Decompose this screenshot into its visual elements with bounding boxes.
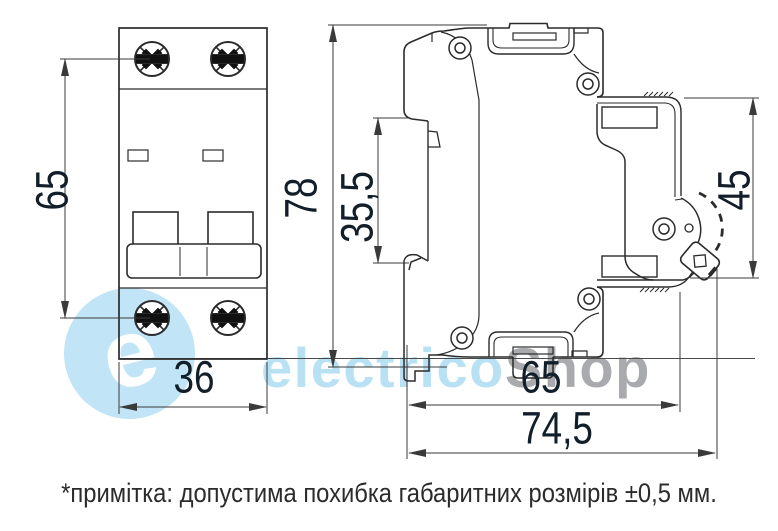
side-top-outline (404, 24, 603, 122)
case-rivet (577, 73, 599, 95)
breaker-dimension-drawing (0, 0, 778, 531)
terminal-recess-bottom (602, 256, 657, 277)
case-rivet (578, 288, 600, 310)
dim-label-overall-depth: 74,5 (521, 406, 593, 451)
top-arch-inner (493, 28, 569, 48)
din-foot (404, 267, 470, 381)
dim-label-din-clip: 35,5 (335, 171, 380, 243)
lever-boss-arc (681, 198, 701, 245)
side-view (404, 24, 722, 382)
technical-drawing-page: e electricoShop (0, 0, 778, 531)
terminal-clamp-bottom (597, 270, 695, 292)
clamp-hatching (640, 288, 669, 292)
molding-lines (432, 32, 599, 355)
lever-pivot-rivet (653, 218, 675, 240)
dim-label-front-width: 36 (173, 355, 214, 400)
toggle-right (208, 212, 253, 247)
toggle-handle-bar (127, 244, 261, 278)
pole-window-right (203, 150, 223, 161)
top-arch-outer (488, 28, 574, 54)
pole-window-left (128, 150, 148, 161)
din-hook (404, 255, 428, 270)
dim-label-right-side: 45 (712, 169, 757, 210)
clamp-hatching (644, 92, 673, 96)
case-rivet (449, 37, 471, 59)
bottom-notch (572, 351, 587, 357)
terminal-recess-top (602, 107, 657, 128)
dim-label-overall-height: 78 (279, 177, 324, 218)
top-tab-window (513, 33, 556, 40)
toggle-left (133, 212, 178, 247)
din-clip-tab (428, 131, 440, 147)
terminal-screw-icon (211, 301, 245, 335)
dim-label-front-height: 65 (30, 169, 75, 210)
lever-pin (685, 224, 693, 232)
case-rivet (451, 327, 473, 349)
dim-label-base-depth: 65 (520, 355, 561, 400)
terminal-clamp-top (597, 92, 682, 200)
terminal-screw-icon (211, 42, 245, 76)
front-view (119, 28, 267, 359)
side-right-wall (597, 104, 653, 280)
tolerance-note: *примітка: допустима похибка габаритних … (47, 477, 732, 509)
lever-handle (679, 240, 722, 282)
